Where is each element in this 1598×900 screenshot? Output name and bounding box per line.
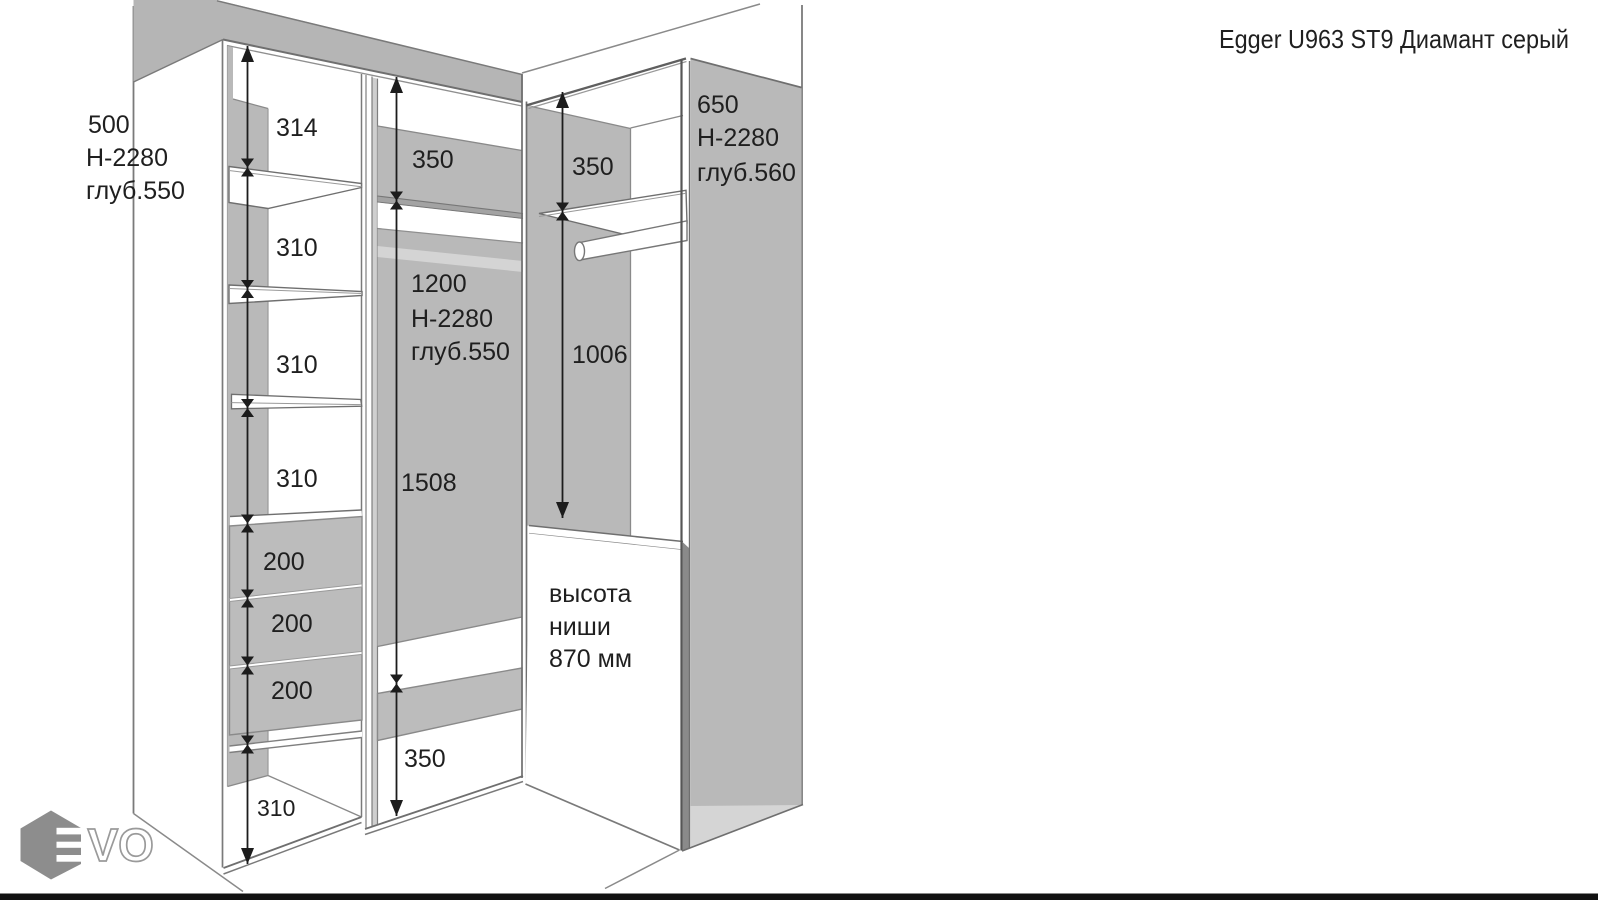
svg-text:VO: VO [88, 819, 154, 871]
svg-text:H-2280: H-2280 [86, 144, 168, 172]
svg-text:314: 314 [276, 114, 318, 142]
svg-text:H-2280: H-2280 [697, 124, 779, 152]
svg-text:высота: высота [549, 580, 632, 608]
svg-text:310: 310 [276, 351, 318, 379]
svg-text:200: 200 [263, 548, 305, 576]
svg-text:глуб.550: глуб.550 [86, 177, 185, 205]
svg-text:1006: 1006 [572, 341, 628, 369]
svg-text:350: 350 [572, 153, 614, 181]
svg-text:650: 650 [697, 91, 739, 119]
svg-text:1200: 1200 [411, 270, 467, 298]
svg-text:ниши: ниши [549, 613, 611, 641]
svg-text:глуб.560: глуб.560 [697, 159, 796, 187]
svg-text:1508: 1508 [401, 469, 457, 497]
svg-text:Egger U963 ST9 Диамант серый: Egger U963 ST9 Диамант серый [1219, 24, 1569, 54]
svg-text:350: 350 [412, 146, 454, 174]
svg-text:H-2280: H-2280 [411, 305, 493, 333]
svg-text:870 мм: 870 мм [549, 645, 632, 673]
svg-text:глуб.550: глуб.550 [411, 338, 510, 366]
svg-text:310: 310 [257, 795, 295, 821]
svg-text:200: 200 [271, 677, 313, 705]
svg-text:310: 310 [276, 234, 318, 262]
svg-text:310: 310 [276, 465, 318, 493]
svg-text:500: 500 [88, 111, 130, 139]
svg-text:350: 350 [404, 745, 446, 773]
svg-text:200: 200 [271, 610, 313, 638]
